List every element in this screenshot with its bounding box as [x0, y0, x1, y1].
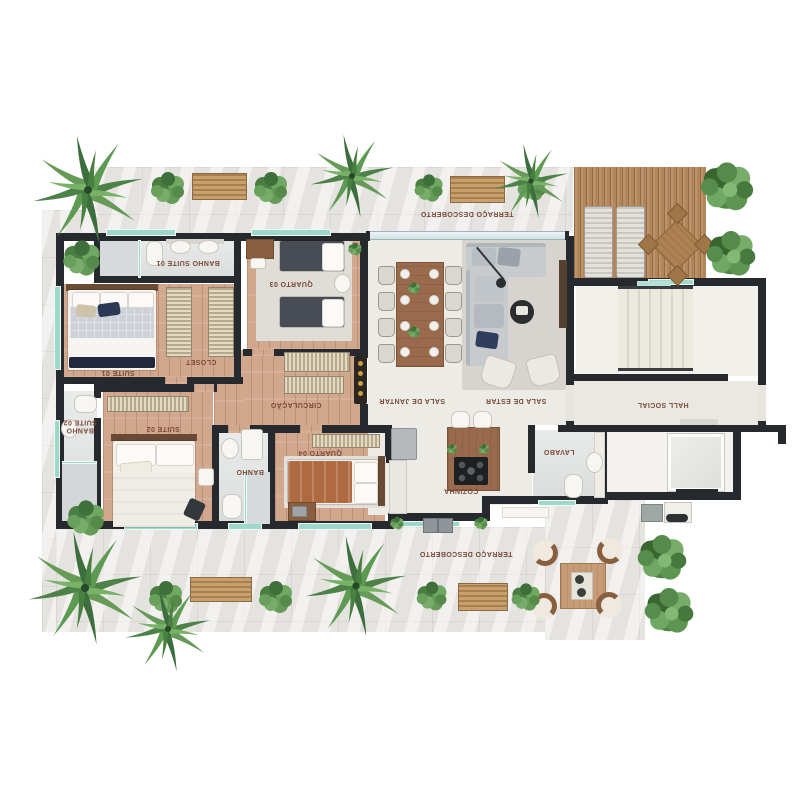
room-label-sala-de-jantar: SALA DE JANTAR — [379, 396, 445, 404]
shower-glass-banho2 — [62, 461, 97, 464]
fridge — [391, 428, 417, 460]
plate-2 — [400, 295, 410, 305]
sofa-cushion-2 — [497, 247, 521, 267]
mat-hall-elevator — [680, 419, 718, 425]
window-banho — [228, 523, 262, 530]
sink-banho1-right — [198, 240, 219, 254]
room-label-quarto-03: QUARTO 03 — [269, 279, 313, 287]
bottle-2 — [358, 371, 363, 376]
room-label-suite-02: SUITE 02 — [146, 424, 180, 432]
sun-lounger-1 — [584, 206, 613, 278]
tree-deck-2 — [704, 227, 758, 281]
wall-suite01-closet-bottom — [56, 377, 243, 384]
plate-6 — [429, 295, 439, 305]
toilet-banho2 — [74, 395, 97, 413]
tree-bottom-1 — [635, 531, 689, 585]
wardrobe-quarto04 — [312, 434, 380, 448]
bush-top-2 — [251, 168, 291, 208]
plate-7 — [429, 321, 439, 331]
bush-bottom-4 — [509, 580, 543, 614]
palm-bottom-left-2 — [120, 581, 216, 677]
room-label-lavabo: LAVABO — [544, 447, 575, 455]
bottle-3 — [358, 381, 363, 386]
banho-shower — [246, 472, 270, 524]
wall-hall-stub — [778, 432, 786, 444]
plant-quarto03 — [347, 241, 363, 257]
dining-chair-r4 — [445, 344, 462, 363]
garden-bench-top-left — [192, 173, 247, 200]
palm-bottom-center — [299, 529, 413, 643]
window-quarto03 — [251, 229, 331, 236]
lavabo-sink — [586, 452, 603, 473]
wardrobe-closet-right — [208, 287, 234, 357]
tree-deck-1 — [698, 158, 756, 216]
glass-post-left — [366, 231, 370, 240]
room-label-circulacao: CIRCULAÇÃO — [270, 400, 321, 408]
centerpiece-2 — [407, 325, 421, 339]
sliding-glass-door — [368, 231, 569, 240]
wardrobe-closet-left — [166, 287, 192, 357]
door-gap-suite02 — [194, 384, 214, 392]
garden-bench-bottom-center — [458, 583, 508, 611]
door-gap-hall-right — [758, 385, 766, 421]
sofa-cushion-4 — [474, 304, 504, 328]
room-label-terraco-bottom: TERRAÇO DESCOBERTO — [419, 549, 512, 557]
plate-5 — [429, 269, 439, 279]
door-gap-hall-left — [566, 385, 574, 421]
room-label-banho-suite-02: BANHO SUITE 02 — [58, 417, 102, 434]
elevator-car — [668, 434, 724, 491]
pillow-quarto04-1 — [354, 462, 378, 483]
plant-kitchen-sill-2 — [473, 515, 489, 531]
pillow-quarto04-2 — [354, 483, 378, 504]
coffee-table-tray — [516, 306, 528, 315]
ac-unit-2 — [438, 518, 453, 533]
throw-navy-suite01 — [69, 357, 155, 368]
wall-elevator-right — [733, 426, 741, 500]
wall-stairs-hall-divider — [570, 374, 728, 381]
banho-shower-glass — [244, 470, 247, 524]
pillow-quarto03-bottom — [322, 299, 344, 327]
wardrobe-suite02 — [107, 396, 189, 412]
room-label-banho: BANHO — [236, 467, 264, 475]
bbq-lid — [666, 514, 688, 522]
room-label-closet: CLOSET — [186, 357, 217, 365]
mat-kitchen-threshold — [502, 507, 549, 518]
cabinet-circulacao-2 — [284, 376, 344, 394]
duvet-quarto04 — [288, 461, 352, 503]
cabinet-circulacao-1 — [284, 352, 350, 372]
sink-banho1-left — [170, 240, 191, 254]
bed-headboard-suite02 — [111, 434, 197, 441]
room-label-cozinha: COZINHA — [444, 486, 479, 494]
palm-top-left — [26, 128, 150, 252]
ac-unit-1 — [423, 518, 438, 533]
patio-plate-1 — [575, 575, 584, 584]
dining-chair-l3 — [378, 318, 395, 337]
kitchen-stool-2 — [473, 411, 492, 428]
wall-closet-quarto03-divider — [234, 233, 241, 383]
plant-island-1 — [446, 443, 458, 455]
door-gap-quarto04 — [300, 425, 322, 433]
palm-top-center — [305, 129, 399, 223]
room-label-quarto-04: QUARTO 04 — [298, 448, 342, 456]
wall-banho2-divider-upper — [94, 384, 101, 398]
room-label-banho-suite-01: BANHO SUITE 01 — [156, 258, 220, 266]
staircase-rail-top — [618, 286, 693, 289]
laptop-quarto04 — [292, 506, 307, 517]
plate-4 — [400, 347, 410, 357]
dining-chair-r2 — [445, 292, 462, 311]
wall-lavabo-left — [528, 425, 535, 473]
room-label-terraco-top: TERRAÇO DESCOBERTO — [420, 209, 513, 217]
patio-chair-tl — [532, 540, 558, 566]
room-floor-circulacao-arm — [214, 384, 244, 429]
plant-island-2 — [478, 443, 490, 455]
dining-chair-r3 — [445, 318, 462, 337]
laptop-quarto03 — [250, 258, 266, 269]
room-label-suite-01: SUITE 01 — [101, 368, 135, 376]
bush-top-3 — [412, 171, 446, 205]
dining-chair-r1 — [445, 266, 462, 285]
tv-sideboard — [559, 260, 567, 328]
staircase — [618, 288, 693, 370]
wall-elevator-bottom — [600, 492, 741, 500]
bush-bottom-2 — [256, 577, 296, 617]
stove — [454, 457, 488, 485]
sofa-pillow-navy — [475, 331, 499, 350]
pillow-quarto03-top — [322, 243, 344, 271]
window-suite01-left — [54, 286, 61, 370]
door-gap-suite01 — [165, 377, 187, 384]
duvet-suite02 — [113, 472, 195, 527]
dining-chair-l1 — [378, 266, 395, 285]
nightstand-suite02 — [198, 468, 214, 486]
room-label-hall-social: HALL SOCIAL — [637, 400, 688, 408]
dining-chair-l2 — [378, 292, 395, 311]
bbq-side-box — [641, 504, 663, 522]
patio-plate-2 — [577, 588, 586, 597]
bush-top-1 — [148, 168, 188, 208]
window-lavabo — [538, 500, 576, 506]
wall-banho1-bottom — [94, 276, 240, 283]
pillow-suite02-2 — [156, 444, 194, 466]
bottle-4 — [358, 391, 363, 396]
door-gap-quarto03 — [252, 349, 274, 356]
banho-sink — [221, 438, 239, 459]
cushion-beige-suite01 — [75, 304, 96, 318]
floor-plan: TERRAÇO DESCOBERTO BANHO SUITE 01 QUARTO… — [0, 0, 800, 800]
plate-1 — [400, 269, 410, 279]
kitchen-counter — [389, 460, 407, 514]
desk-quarto03 — [246, 239, 274, 259]
pillow-suite01-3 — [128, 292, 154, 308]
staircase-rail-bottom — [618, 368, 693, 371]
centerpiece-1 — [407, 281, 421, 295]
glass-post-right — [565, 231, 569, 240]
patio-chair-tr — [597, 538, 623, 564]
dining-chair-l4 — [378, 344, 395, 363]
wall-hall-bottom — [558, 425, 786, 432]
nightstand-quarto03 — [334, 274, 351, 293]
patio-chair-br — [596, 592, 622, 618]
bed-headboard-quarto04 — [378, 456, 385, 506]
bush-bottom-3 — [414, 578, 450, 614]
kitchen-stool-1 — [451, 411, 470, 428]
floor-lamp-head — [496, 278, 506, 288]
elevator-door-sill — [676, 489, 718, 493]
banho-cabinet — [241, 429, 263, 460]
lavabo-toilet — [564, 474, 583, 498]
room-label-sala-de-estar: SALA DE ESTAR — [486, 396, 547, 404]
tree-bottom-2 — [642, 584, 696, 638]
bottle-1 — [358, 361, 363, 366]
plate-8 — [429, 347, 439, 357]
banho-toilet — [222, 494, 242, 519]
